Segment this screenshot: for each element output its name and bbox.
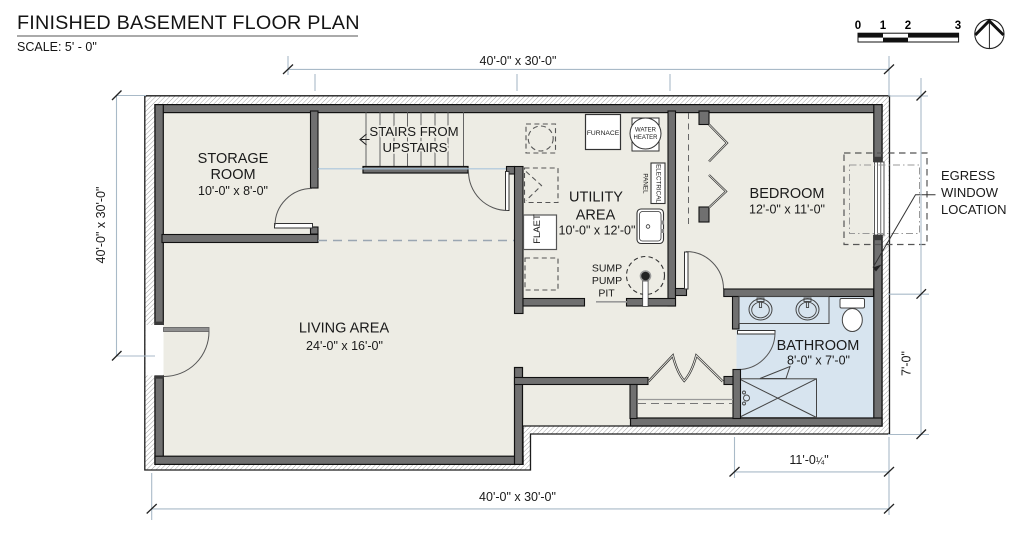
svg-text:UTILITY: UTILITY (569, 190, 623, 206)
svg-text:0: 0 (855, 20, 861, 32)
svg-text:40'-0" x 30'-0": 40'-0" x 30'-0" (480, 54, 557, 68)
svg-text:PUMP: PUMP (592, 275, 622, 287)
svg-text:STAIRS FROM: STAIRS FROM (369, 124, 458, 139)
svg-text:LOCATION: LOCATION (941, 202, 1007, 217)
svg-text:2: 2 (905, 20, 911, 32)
svg-text:11'-0¼": 11'-0¼" (789, 453, 828, 467)
svg-text:EGRESS: EGRESS (941, 168, 996, 183)
svg-text:FLAET: FLAET (532, 214, 543, 244)
svg-text:40'-0" x 30'-0": 40'-0" x 30'-0" (479, 490, 556, 504)
svg-text:SCALE: 5' - 0": SCALE: 5' - 0" (17, 40, 97, 54)
svg-text:7'-0": 7'-0" (900, 351, 914, 376)
svg-text:ROOM: ROOM (210, 167, 255, 183)
svg-text:BEDROOM: BEDROOM (750, 186, 825, 202)
svg-text:PIT: PIT (598, 288, 615, 300)
svg-text:AREA: AREA (576, 208, 616, 224)
svg-text:FURNACE: FURNACE (587, 130, 620, 137)
svg-text:1: 1 (880, 20, 887, 32)
svg-text:3: 3 (955, 20, 961, 32)
svg-text:FINISHED BASEMENT FLOOR PLAN: FINISHED BASEMENT FLOOR PLAN (17, 12, 360, 34)
svg-text:8'-0" x 7'-0": 8'-0" x 7'-0" (787, 354, 850, 368)
svg-text:10'-0" x 12'-0": 10'-0" x 12'-0" (559, 224, 636, 238)
svg-text:LIVING AREA: LIVING AREA (299, 321, 390, 337)
svg-text:ELECTRICAL: ELECTRICAL (655, 164, 662, 203)
svg-text:STORAGE: STORAGE (198, 151, 269, 167)
svg-text:BATHROOM: BATHROOM (777, 338, 860, 354)
svg-text:WINDOW: WINDOW (941, 185, 999, 200)
svg-text:PANEL: PANEL (642, 173, 649, 194)
svg-text:HEATER: HEATER (634, 135, 659, 141)
svg-text:40'-0" x 30'-0": 40'-0" x 30'-0" (94, 187, 108, 264)
svg-text:SUMP: SUMP (592, 263, 622, 275)
svg-text:UPSTAIRS: UPSTAIRS (383, 140, 448, 155)
svg-text:10'-0" x 8'-0": 10'-0" x 8'-0" (198, 184, 268, 198)
svg-text:WATER: WATER (635, 128, 657, 134)
svg-text:24'-0" x 16'-0": 24'-0" x 16'-0" (306, 339, 383, 353)
svg-text:12'-0" x 11'-0": 12'-0" x 11'-0" (749, 203, 825, 217)
